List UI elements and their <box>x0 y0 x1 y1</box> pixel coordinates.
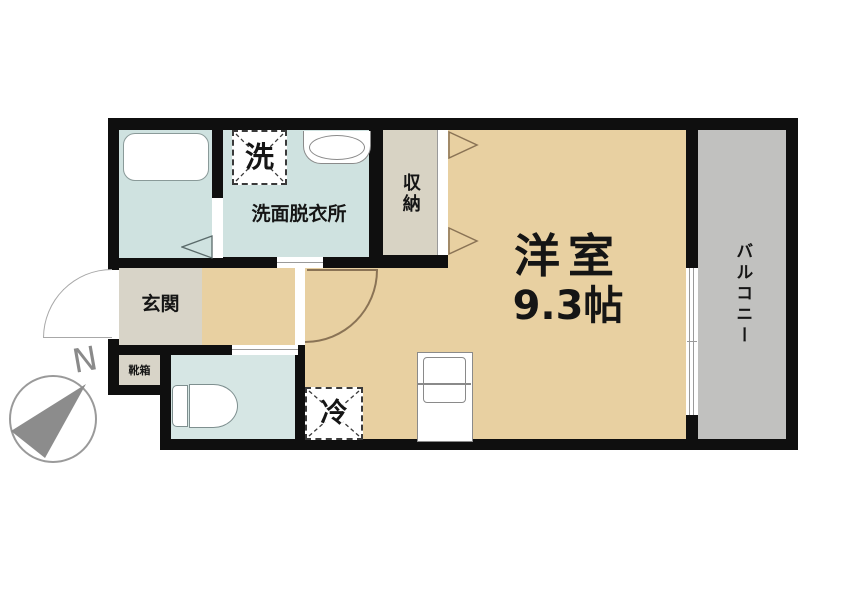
bath-door-triangle <box>181 235 213 259</box>
refrigerator-box: 冷 <box>305 387 363 440</box>
closet-door-track <box>437 130 448 255</box>
fridge-label: 冷 <box>307 389 361 438</box>
entrance-label: 玄関 <box>119 293 202 315</box>
toilet-bowl <box>189 384 238 428</box>
hall-door-opening <box>295 268 305 345</box>
sink-bowl <box>309 135 365 160</box>
bathroom-door-opening <box>212 198 223 258</box>
washing-machine-box: 洗 <box>232 130 287 185</box>
main-room-size-label: 9.3帖 <box>450 285 686 329</box>
bathtub <box>123 133 209 181</box>
entrance-door-arc <box>43 269 112 338</box>
compass-north-label: N <box>65 339 105 380</box>
main-room-name-label: 洋室 <box>450 232 686 282</box>
kitchen-sink <box>423 357 466 403</box>
washroom-label: 洗面脱衣所 <box>228 203 370 225</box>
washer-label: 洗 <box>234 132 285 183</box>
washroom-sliding-door <box>277 257 323 268</box>
kitchen-unit <box>417 352 473 442</box>
balcony-label: バルコニー <box>730 224 754 364</box>
toilet-sliding-door <box>232 345 298 355</box>
floor-plan-canvas: 洗 冷 洋室 9.3帖 洗面脱衣所 収納 バルコニー 玄関 靴箱 <box>0 0 848 590</box>
closet-label: 収納 <box>398 160 422 228</box>
room-door-leaf <box>307 269 378 271</box>
kitchen-counter-line <box>418 383 471 385</box>
toilet-tank <box>172 385 188 427</box>
balcony-window <box>686 268 698 415</box>
closet-door-triangle-top <box>448 131 479 159</box>
shoebox-label: 靴箱 <box>119 364 160 378</box>
hallway-floor <box>202 268 295 345</box>
